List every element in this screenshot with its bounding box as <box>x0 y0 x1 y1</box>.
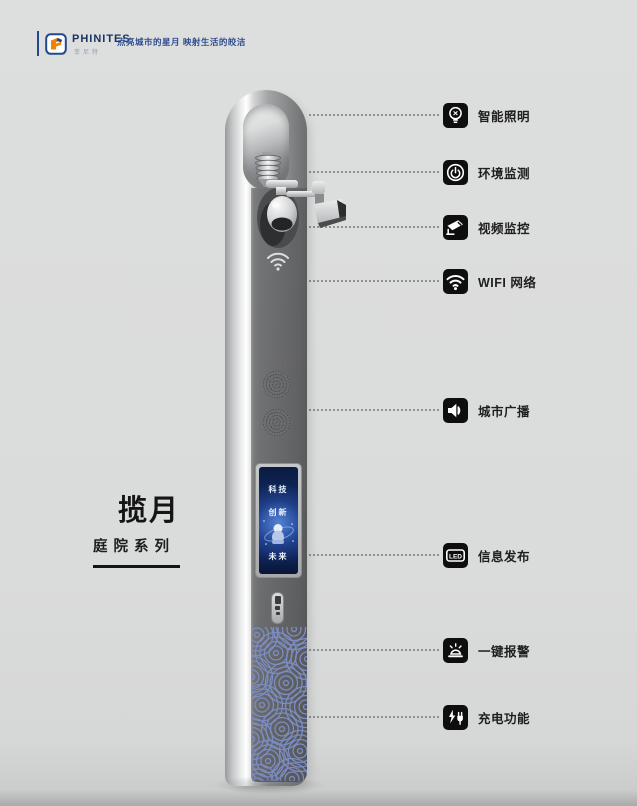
leader-line <box>309 409 439 411</box>
env-sensor-icon <box>443 160 468 185</box>
feature-item-wifi-network: WIFI 网络 <box>443 269 536 294</box>
led-icon: LED <box>443 543 468 568</box>
feature-label: WIFI 网络 <box>478 272 536 291</box>
panel-button <box>275 606 280 610</box>
phinites-logo-icon <box>45 33 67 55</box>
product-series: 庭院系列 <box>93 535 180 556</box>
feature-label: 信息发布 <box>478 546 530 565</box>
screen-content: 科技 创新 未来 <box>259 467 298 574</box>
astronaut-graphic <box>259 517 298 551</box>
alarm-icon <box>443 638 468 663</box>
feature-label: 环境监测 <box>478 163 530 182</box>
brand-tagline: 点亮城市的星月 映射生活的皎洁 <box>117 36 246 48</box>
wifi-icon <box>443 269 468 294</box>
feature-label: 城市广播 <box>478 401 530 420</box>
feature-item-smart-lighting: 智能照明 <box>443 103 530 128</box>
speaker-icon <box>443 398 468 423</box>
leader-line <box>309 114 439 116</box>
panel-button <box>275 596 281 604</box>
feature-item-city-broadcast: 城市广播 <box>443 398 530 423</box>
feature-item-info-display: LED 信息发布 <box>443 543 530 568</box>
feature-item-charging: 充电功能 <box>443 705 530 730</box>
feature-label: 充电功能 <box>478 708 530 727</box>
product-title: 揽月 <box>93 496 180 528</box>
wifi-indicator-icon <box>265 251 291 271</box>
feature-item-env-monitoring: 环境监测 <box>443 160 530 185</box>
panel-button <box>276 612 280 615</box>
wave-pattern <box>252 627 307 781</box>
leader-line <box>309 716 439 718</box>
product-title-block: 揽月 庭院系列 <box>93 496 180 568</box>
cctv-icon <box>443 215 468 240</box>
feature-label: 智能照明 <box>478 106 530 125</box>
floor-shade <box>0 790 637 806</box>
speaker-grille <box>263 409 290 436</box>
display-screen: 科技 创新 未来 <box>255 463 302 578</box>
leader-line <box>309 649 439 651</box>
leader-line <box>309 280 439 282</box>
charging-icon <box>443 705 468 730</box>
screen-text-line: 科技 <box>259 484 298 495</box>
leader-line <box>309 171 439 173</box>
screen-text-line: 未来 <box>259 551 298 562</box>
led-icon-text: LED <box>449 553 462 560</box>
title-underline <box>93 565 180 568</box>
brand-divider-bar <box>37 31 39 56</box>
control-button-panel <box>271 592 284 624</box>
speaker-grille <box>263 371 290 398</box>
feature-label: 视频监控 <box>478 218 530 237</box>
bulb-icon <box>443 103 468 128</box>
brand-name-chinese: 菲尼特 <box>74 47 101 56</box>
camera-assembly <box>256 178 348 250</box>
camera-mount-cylinder <box>312 181 325 194</box>
feature-item-sos-alarm: 一键报警 <box>443 638 530 663</box>
feature-item-video-surveillance: 视频监控 <box>443 215 530 240</box>
leader-line <box>309 554 439 556</box>
feature-label: 一键报警 <box>478 641 530 660</box>
